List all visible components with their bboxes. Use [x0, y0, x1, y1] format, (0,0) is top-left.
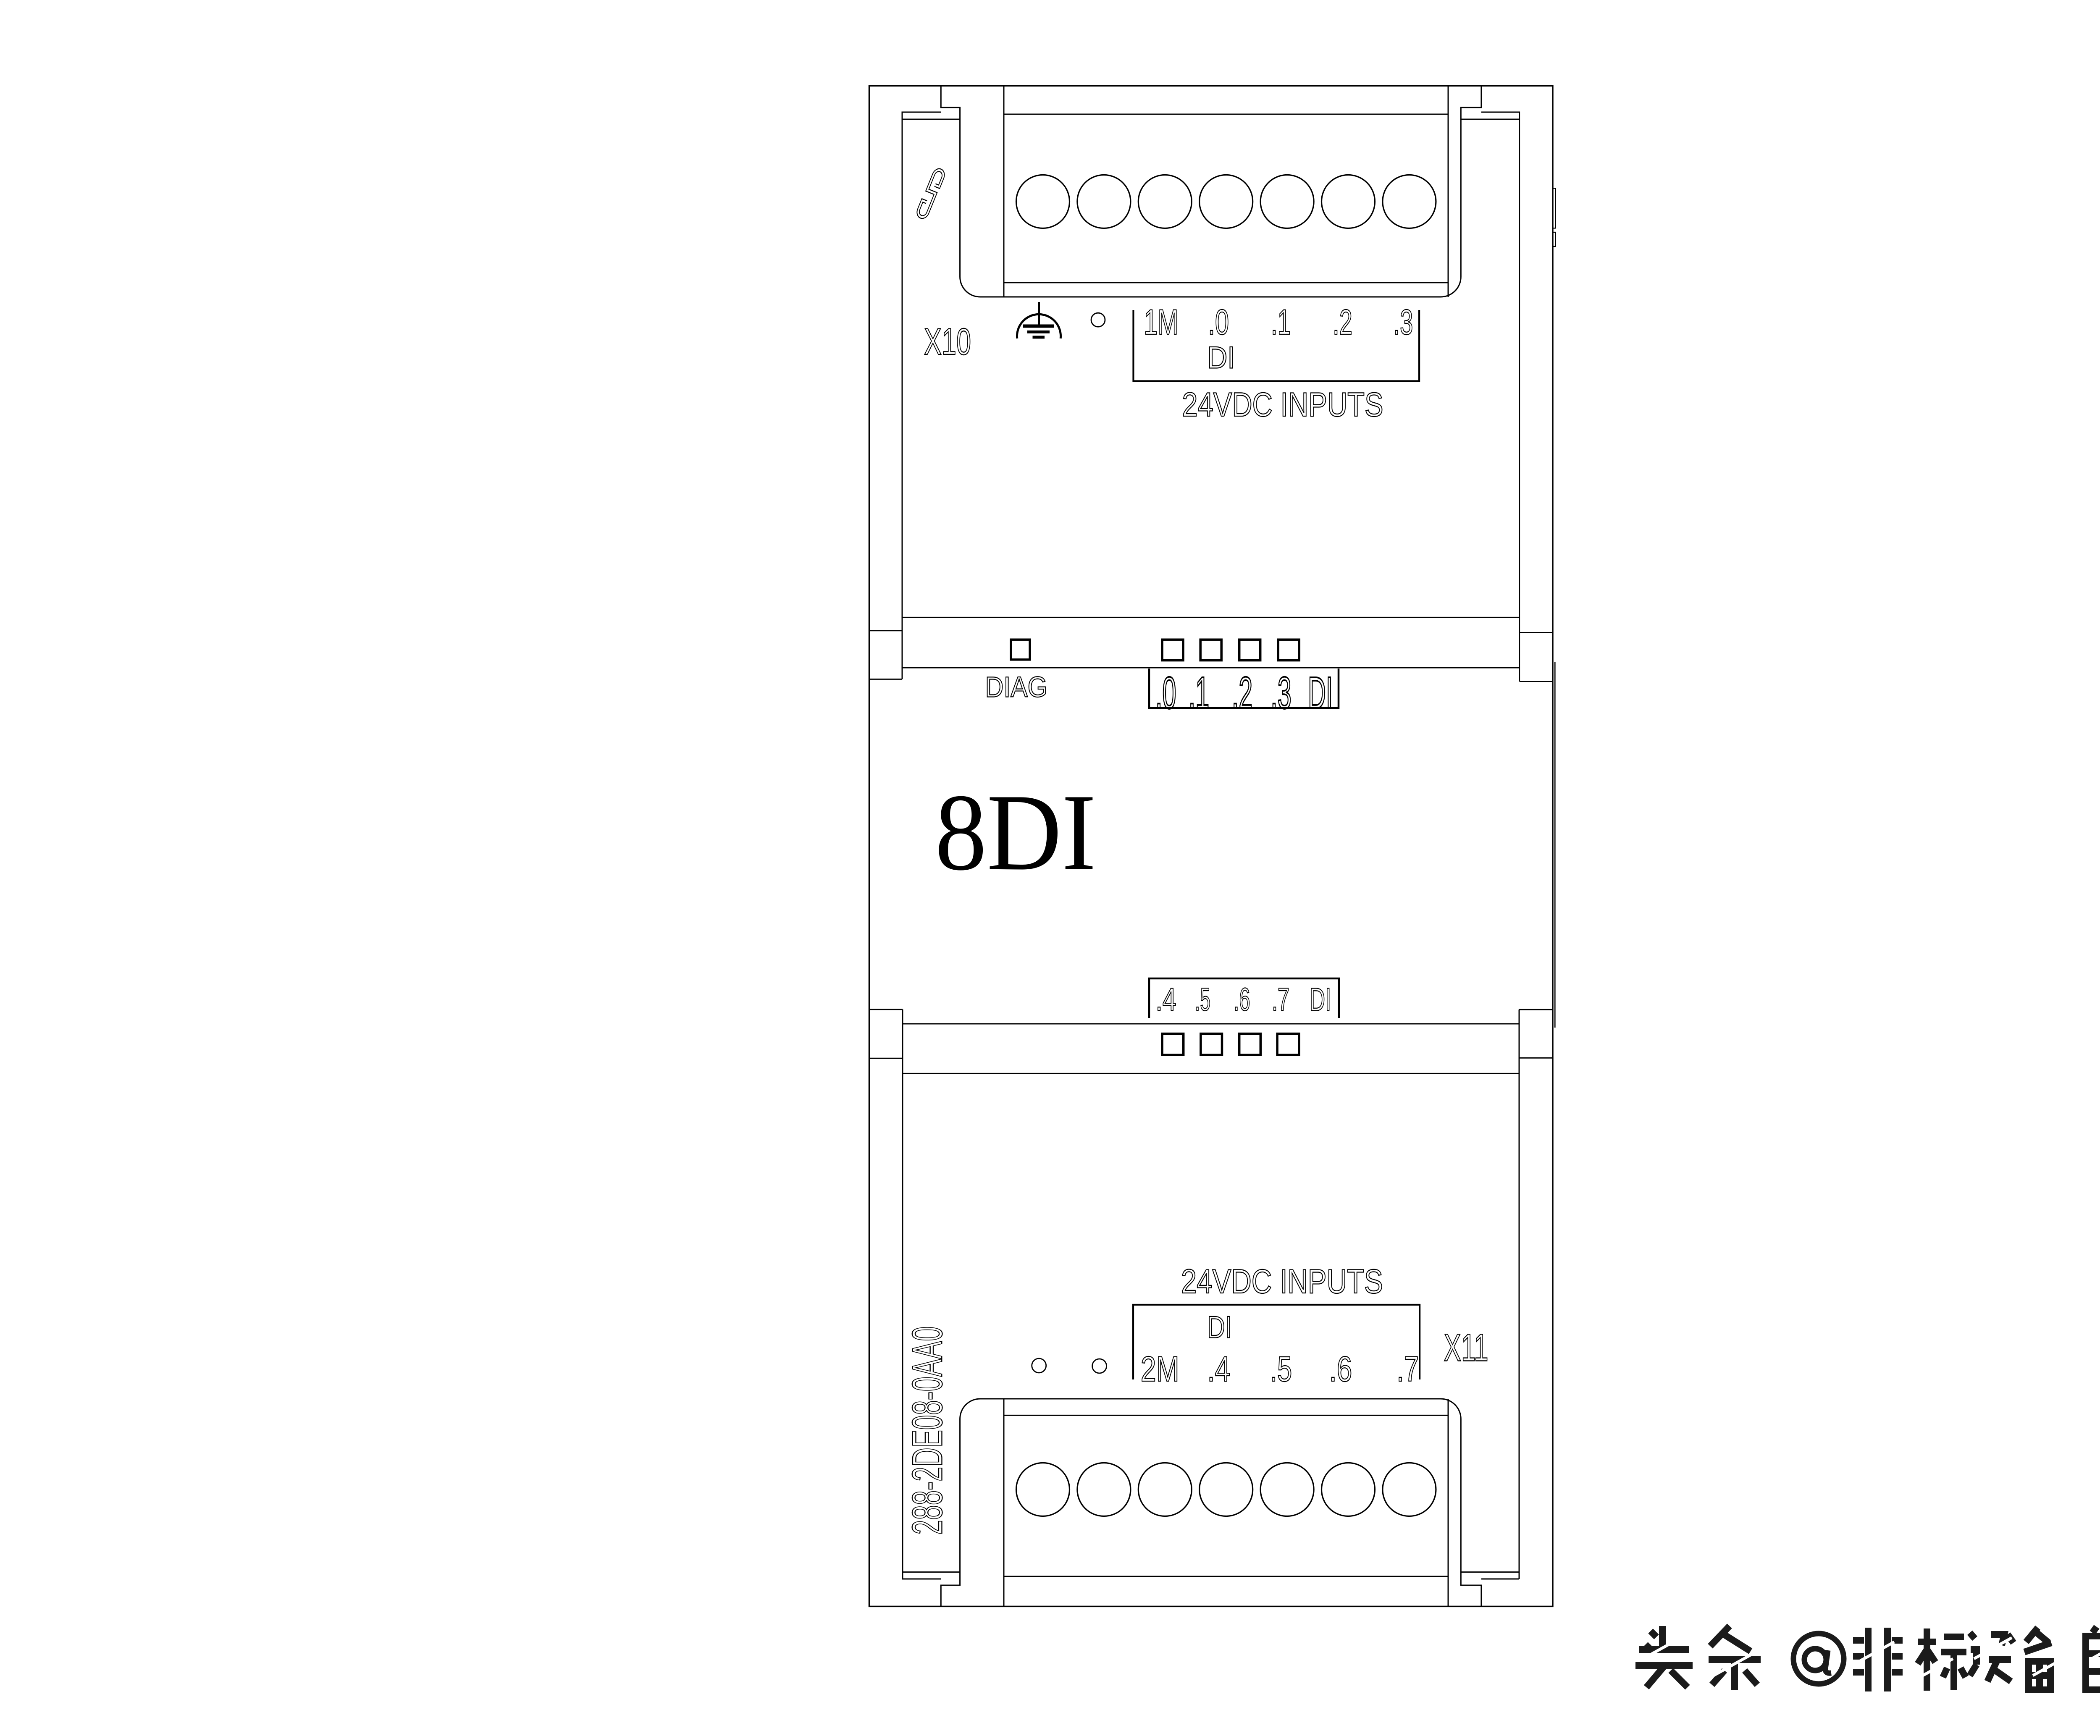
- svg-text:DI: DI: [1310, 982, 1331, 1018]
- svg-text:.3: .3: [1270, 668, 1291, 718]
- svg-text:.4: .4: [1207, 1349, 1230, 1389]
- svg-text:.5: .5: [1270, 1349, 1292, 1389]
- svg-text:X11: X11: [1444, 1327, 1488, 1369]
- svg-text:2M: 2M: [1141, 1349, 1179, 1389]
- svg-text:.5: .5: [1195, 982, 1210, 1018]
- svg-text:.2: .2: [1232, 668, 1253, 718]
- svg-text:DI: DI: [1207, 1310, 1232, 1344]
- svg-text:.0: .0: [1208, 302, 1229, 342]
- svg-text:.1: .1: [1189, 668, 1210, 718]
- svg-text:.4: .4: [1156, 982, 1176, 1018]
- svg-text:.7: .7: [1272, 982, 1289, 1018]
- svg-text:X10: X10: [924, 320, 971, 362]
- svg-text:.6: .6: [1234, 982, 1250, 1018]
- svg-text:.6: .6: [1329, 1349, 1352, 1389]
- svg-text:.7: .7: [1396, 1349, 1419, 1389]
- svg-text:.0: .0: [1155, 668, 1176, 718]
- svg-text:24VDC INPUTS: 24VDC INPUTS: [1181, 1263, 1383, 1301]
- svg-text:DI: DI: [1308, 668, 1333, 718]
- svg-text:.3: .3: [1393, 302, 1413, 342]
- svg-text:.2: .2: [1333, 302, 1352, 342]
- svg-text:288-2DE08-0AA0: 288-2DE08-0AA0: [904, 1327, 951, 1535]
- svg-text:1M: 1M: [1144, 302, 1178, 342]
- svg-text:24VDC INPUTS: 24VDC INPUTS: [1182, 386, 1383, 424]
- svg-text:.1: .1: [1271, 302, 1291, 342]
- svg-text:8DI: 8DI: [935, 771, 1096, 893]
- svg-text:DIAG: DIAG: [985, 671, 1047, 703]
- svg-text:DI: DI: [1207, 341, 1235, 375]
